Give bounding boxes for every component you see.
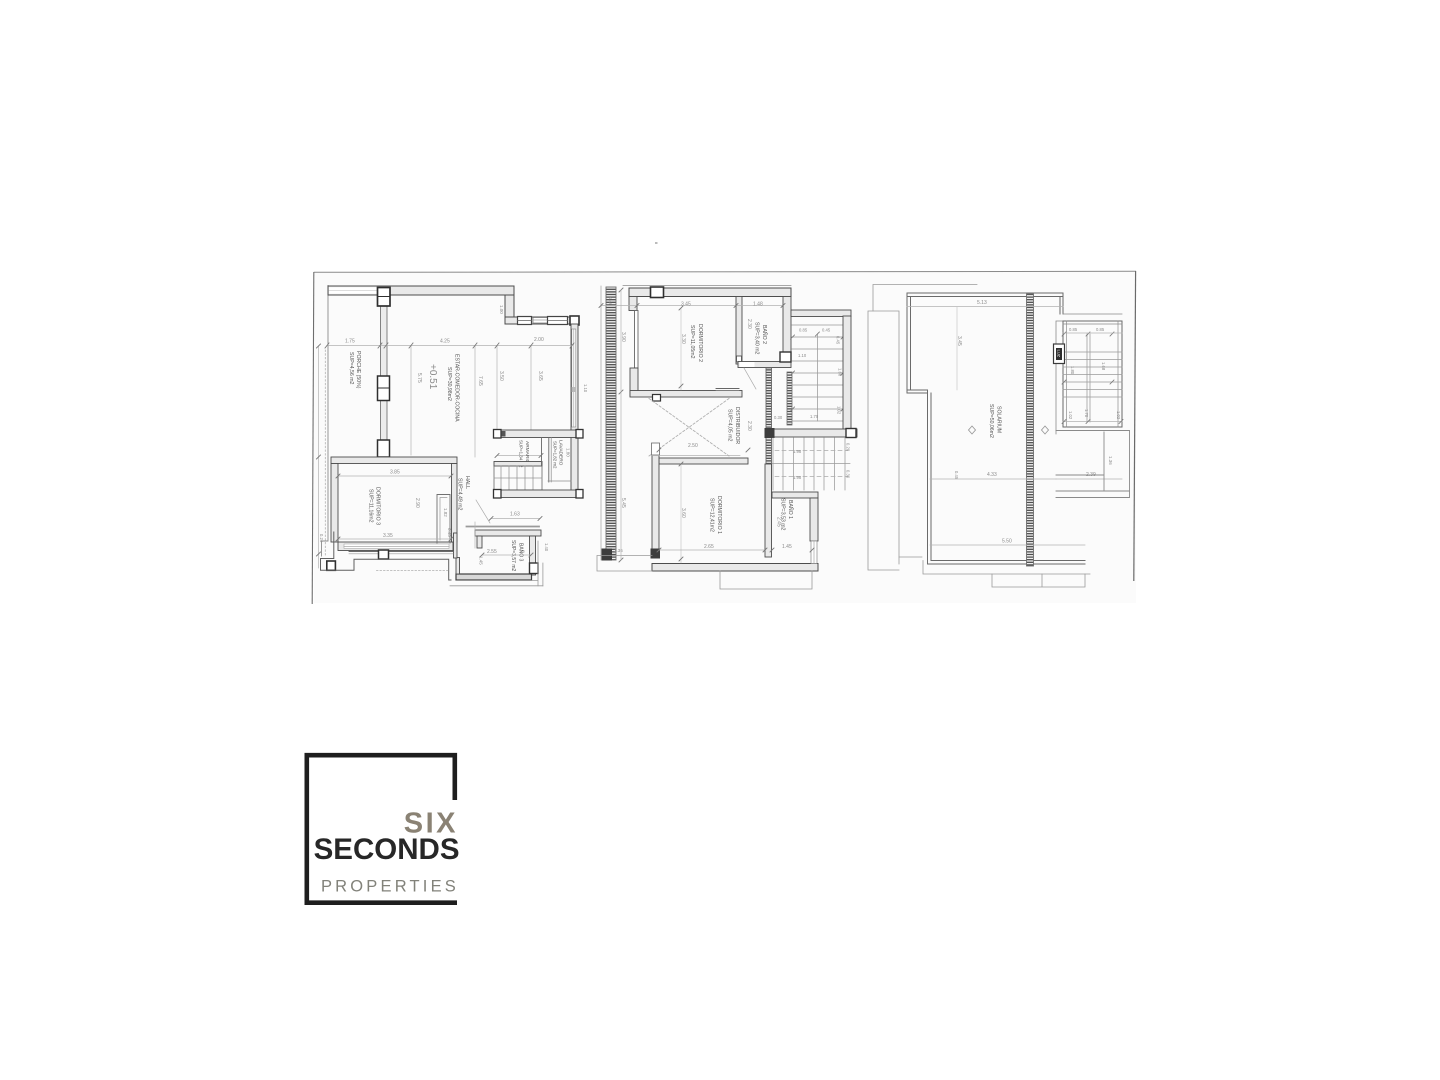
svg-text:BAÑO 3: BAÑO 3 [518, 543, 525, 562]
svg-text:1.82: 1.82 [443, 508, 448, 517]
svg-text:1.45: 1.45 [782, 544, 792, 550]
svg-text:3.45: 3.45 [956, 336, 962, 346]
svg-text:SECONDS: SECONDS [314, 833, 460, 866]
svg-text:0.30: 0.30 [774, 415, 783, 420]
svg-text:7.65: 7.65 [477, 376, 483, 386]
svg-text:3.65: 3.65 [537, 371, 543, 381]
svg-text:3.90: 3.90 [620, 332, 626, 342]
svg-text:BAÑO 1: BAÑO 1 [787, 500, 794, 519]
svg-text:2.55: 2.55 [487, 549, 497, 555]
svg-text:1.68: 1.68 [1101, 362, 1106, 371]
svg-text:SUP=12,41m2: SUP=12,41m2 [709, 498, 715, 532]
svg-text:DORMITORIO 1: DORMITORIO 1 [716, 496, 722, 534]
svg-text:1.02: 1.02 [837, 406, 842, 415]
svg-text:1.75: 1.75 [345, 339, 355, 345]
svg-text:1.36: 1.36 [614, 548, 623, 553]
svg-text:PROPERTIES: PROPERTIES [321, 878, 459, 896]
svg-text:0.85: 0.85 [1069, 327, 1078, 332]
svg-text:0.85: 0.85 [799, 328, 808, 333]
svg-text:5.75: 5.75 [416, 373, 422, 383]
svg-text:1.80: 1.80 [1070, 366, 1075, 375]
svg-text:BAÑO 2: BAÑO 2 [761, 325, 768, 344]
svg-text:1.80: 1.80 [566, 448, 571, 457]
svg-text:2.50: 2.50 [688, 443, 698, 449]
svg-text:1.68: 1.68 [838, 368, 843, 377]
svg-text:3.35: 3.35 [383, 533, 393, 539]
svg-text:5.45: 5.45 [620, 498, 626, 508]
svg-text:1.40: 1.40 [544, 543, 549, 552]
svg-text:3.60: 3.60 [680, 508, 686, 518]
svg-text:SUP=50,06m2: SUP=50,06m2 [988, 404, 994, 438]
svg-text:5.50: 5.50 [1002, 539, 1012, 545]
svg-text:SUP=4,05 m2: SUP=4,05 m2 [727, 409, 733, 442]
svg-text:SUP=3,57 m2: SUP=3,57 m2 [510, 540, 516, 571]
svg-text:0.30: 0.30 [846, 470, 851, 479]
svg-text:2.90: 2.90 [414, 498, 420, 508]
svg-text:1.00: 1.00 [499, 305, 504, 314]
svg-text:3.50: 3.50 [498, 371, 504, 381]
svg-text:DORMITORIO 3: DORMITORIO 3 [375, 487, 381, 525]
svg-text:0.85: 0.85 [1096, 327, 1105, 332]
svg-text:SUP=1,82 m2: SUP=1,82 m2 [553, 441, 558, 469]
svg-text:SUP=3,40 m2: SUP=3,40 m2 [754, 322, 760, 355]
svg-text:2.30: 2.30 [746, 421, 752, 431]
svg-text:2.65: 2.65 [704, 544, 714, 550]
svg-text:1.98: 1.98 [793, 449, 802, 454]
svg-text:0.45: 0.45 [954, 471, 959, 480]
svg-text:1.70: 1.70 [810, 414, 819, 419]
svg-text:+0.51: +0.51 [427, 364, 438, 390]
svg-text:1.02: 1.02 [1068, 411, 1073, 420]
svg-text:SUP=11,16m2: SUP=11,16m2 [368, 489, 374, 523]
svg-text:HALL: HALL [464, 476, 470, 489]
svg-text:1.36: 1.36 [1108, 456, 1113, 465]
svg-text:LUZ: LUZ [1057, 350, 1062, 358]
svg-text:SOLARIUM: SOLARIUM [996, 406, 1002, 433]
svg-text:1.48: 1.48 [753, 302, 763, 308]
svg-text:ESTAR-COMEDOR-COCINA: ESTAR-COMEDOR-COCINA [454, 354, 460, 422]
svg-text:SUP=30,98m2: SUP=30,98m2 [446, 367, 452, 401]
svg-text:0.45: 0.45 [836, 336, 841, 345]
svg-text:ARMARIO: ARMARIO [524, 441, 530, 464]
svg-text:0.24: 0.24 [319, 534, 324, 543]
svg-text:DORMITORIO 2: DORMITORIO 2 [697, 324, 703, 362]
svg-text:0.45: 0.45 [822, 328, 831, 333]
svg-text:1.02: 1.02 [1116, 411, 1121, 420]
svg-text:3.30: 3.30 [680, 334, 686, 344]
svg-text:3.85: 3.85 [390, 470, 400, 476]
svg-text:PORCHE (50%): PORCHE (50%) [355, 351, 361, 389]
svg-text:0.20: 0.20 [846, 443, 851, 452]
svg-text:4.33: 4.33 [987, 472, 997, 478]
svg-text:2.30: 2.30 [746, 319, 752, 329]
svg-text:2.45: 2.45 [776, 517, 782, 527]
svg-text:0.45: 0.45 [447, 528, 452, 537]
svg-text:1.98: 1.98 [793, 475, 802, 480]
svg-text:2.00: 2.00 [534, 337, 544, 343]
svg-text:1.10: 1.10 [798, 353, 807, 358]
svg-text:1.70: 1.70 [1084, 409, 1089, 418]
svg-text:1.45: 1.45 [479, 556, 484, 565]
svg-text:DISTRIBUIDOR: DISTRIBUIDOR [734, 407, 740, 444]
svg-text:1.10: 1.10 [583, 384, 588, 393]
svg-text:SUP=4,56 m2: SUP=4,56 m2 [348, 352, 354, 385]
svg-text:1.63: 1.63 [510, 512, 520, 518]
svg-text:0.48: 0.48 [608, 297, 613, 306]
svg-text:SUP=11,05m2: SUP=11,05m2 [689, 325, 695, 359]
svg-text:SUP=4,49 m2: SUP=4,49 m2 [457, 478, 463, 511]
svg-text:5.13: 5.13 [977, 300, 987, 306]
svg-text:4.25: 4.25 [440, 339, 450, 345]
